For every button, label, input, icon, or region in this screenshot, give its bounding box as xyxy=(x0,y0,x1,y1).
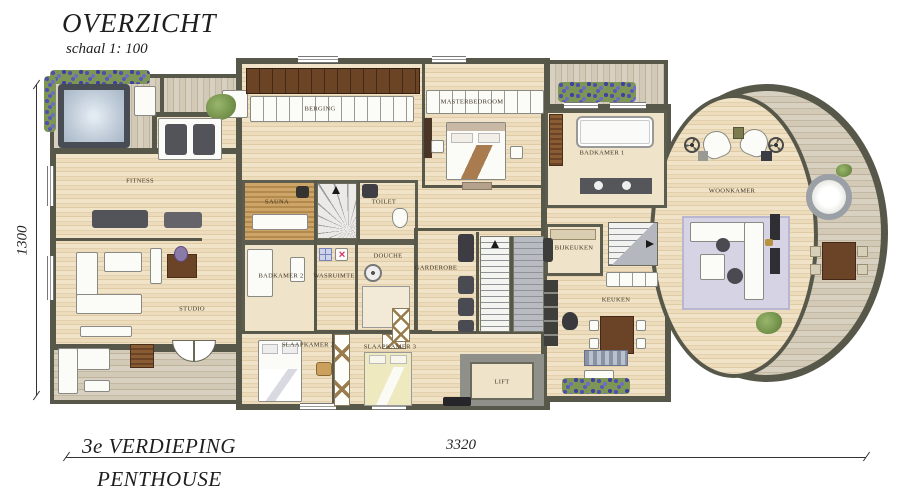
planter-flowers xyxy=(50,70,150,84)
bijkeuken-counter xyxy=(550,229,596,240)
bookshelf xyxy=(150,248,162,284)
chair xyxy=(810,264,821,275)
sofa xyxy=(744,222,764,300)
sauna-bench xyxy=(252,214,308,230)
studio-chair xyxy=(174,246,188,262)
window xyxy=(47,166,54,206)
room-label-bijkeuken: BIJKEUKEN xyxy=(555,245,593,252)
terrace-table xyxy=(84,380,110,392)
side-table xyxy=(761,151,772,161)
locker xyxy=(458,298,474,316)
master-bed xyxy=(446,122,506,180)
shrubs xyxy=(558,82,636,102)
scale-label: schaal 1: 100 xyxy=(66,41,148,58)
stair-direction-arrow xyxy=(646,240,654,248)
shower-head-icon xyxy=(364,264,382,282)
kitchen-dining-table xyxy=(600,316,634,354)
pillow xyxy=(369,355,386,364)
terrace-sofa xyxy=(58,348,78,394)
pillow xyxy=(390,355,407,364)
blanket xyxy=(259,369,301,401)
room-label-lift: LIFT xyxy=(495,379,510,386)
chair xyxy=(589,320,599,331)
wood-crate xyxy=(130,344,154,368)
chair xyxy=(810,246,821,257)
studio-chaise xyxy=(104,252,142,272)
counter-row xyxy=(606,272,658,287)
doormat xyxy=(443,397,471,406)
planter-flowers xyxy=(562,378,630,394)
window xyxy=(298,56,338,63)
room-label-woonkamer: WOONKAMER xyxy=(709,188,755,195)
chair xyxy=(857,264,868,275)
window xyxy=(300,403,336,410)
bath-cabinet xyxy=(549,114,563,166)
locker xyxy=(458,320,474,332)
bathtub-1 xyxy=(576,116,654,148)
height-dimension-line xyxy=(36,84,37,396)
closet-x-doors xyxy=(334,334,350,406)
appliance xyxy=(543,238,553,262)
room-label-douche: DOUCHE xyxy=(374,253,403,260)
fireplace xyxy=(765,239,773,246)
room-label-fitness: FITNESS xyxy=(126,178,154,185)
stair-flight-up xyxy=(480,236,510,332)
side-table xyxy=(733,127,744,139)
nightstand xyxy=(431,140,444,153)
width-dimension-value: 3320 xyxy=(446,437,476,454)
planter-flowers xyxy=(44,76,56,132)
height-dimension-value: 1300 xyxy=(15,226,32,256)
closet-x-doors xyxy=(392,308,410,342)
studio-bench xyxy=(80,326,132,337)
chair xyxy=(636,338,646,349)
room-label-keuken: KEUKEN xyxy=(602,297,631,304)
room-label-studio: STUDIO xyxy=(179,306,205,313)
wall xyxy=(52,238,202,241)
kitchen-counter xyxy=(544,280,558,346)
room-label-slaapkamer3: SLAAPKAMER 3 xyxy=(364,344,417,351)
room-label-sauna: SAUNA xyxy=(265,199,289,206)
sink xyxy=(622,181,631,190)
cross-icon: ✕ xyxy=(338,250,346,261)
pouf xyxy=(716,238,730,252)
room-label-badkamer2: BADKAMER 2 xyxy=(258,273,303,280)
chair xyxy=(857,246,868,257)
stair-direction-arrow xyxy=(491,240,499,248)
bench-press xyxy=(164,212,202,228)
room-label-garderobe: GARDEROBE xyxy=(415,265,457,272)
blanket xyxy=(365,367,411,405)
room-label-wasruimte: WASRUIMTE xyxy=(313,273,354,280)
stair-direction-arrow xyxy=(332,186,340,194)
wall xyxy=(314,242,317,334)
pillow xyxy=(478,133,500,143)
locker xyxy=(458,276,474,294)
room-label-berging: BERGING xyxy=(305,106,336,113)
bed-bench xyxy=(462,182,492,190)
window xyxy=(432,56,466,63)
floorplan-canvas: OVERZICHT schaal 1: 100 3e VERDIEPING PE… xyxy=(0,0,900,500)
toilet-fixture xyxy=(392,208,408,228)
wall xyxy=(355,242,358,334)
wall xyxy=(414,228,417,334)
nightstand xyxy=(510,146,523,159)
wall xyxy=(476,232,479,334)
locker xyxy=(458,234,474,262)
desk-chair xyxy=(316,362,332,376)
toilet-cabinet xyxy=(362,184,378,198)
room-label-toilet: TOILET xyxy=(372,199,396,206)
bed-slaapkamer3 xyxy=(364,352,412,406)
stair-flight-down xyxy=(513,236,544,332)
treadmill xyxy=(92,210,148,228)
blanket xyxy=(447,145,505,179)
tv-panel xyxy=(770,214,780,240)
lounger xyxy=(193,124,215,155)
washer-icon xyxy=(319,248,332,261)
side-table xyxy=(698,151,708,161)
pillow xyxy=(262,344,278,354)
double-vanity xyxy=(580,178,652,194)
round-hot-tub xyxy=(806,174,852,220)
window xyxy=(47,256,54,300)
sauna-stove xyxy=(296,186,309,198)
striped-lounger xyxy=(584,350,628,366)
closet-row-dark xyxy=(246,68,420,94)
floor-name-line1: 3e VERDIEPING xyxy=(82,434,236,459)
room-label-badkamer1: BADKAMER 1 xyxy=(579,150,624,157)
room-label-slaapkamer2: SLAAPKAMER 2 xyxy=(282,342,335,349)
lounger xyxy=(165,124,187,155)
tv-panel xyxy=(770,248,780,274)
jacuzzi xyxy=(58,84,130,148)
window xyxy=(610,102,646,109)
terrace-dining-table xyxy=(822,242,856,280)
page-title: OVERZICHT xyxy=(62,8,217,39)
office-chair xyxy=(562,312,578,330)
pouf xyxy=(727,268,743,284)
floor-name-line2: PENTHOUSE xyxy=(97,467,222,492)
width-dimension-line xyxy=(66,457,866,458)
studio-sofa-bottom xyxy=(76,294,142,314)
wall xyxy=(357,180,360,242)
room-label-masterbedroom: MASTERBEDROOM xyxy=(441,99,504,106)
armchair xyxy=(700,254,725,280)
bed-slaapkamer2 xyxy=(258,340,302,402)
chair xyxy=(636,320,646,331)
headboard xyxy=(447,123,505,131)
sink xyxy=(594,181,603,190)
window xyxy=(564,102,598,109)
wall xyxy=(414,228,548,231)
pillow xyxy=(451,133,473,143)
chair xyxy=(589,338,599,349)
terrace-table xyxy=(134,86,156,116)
